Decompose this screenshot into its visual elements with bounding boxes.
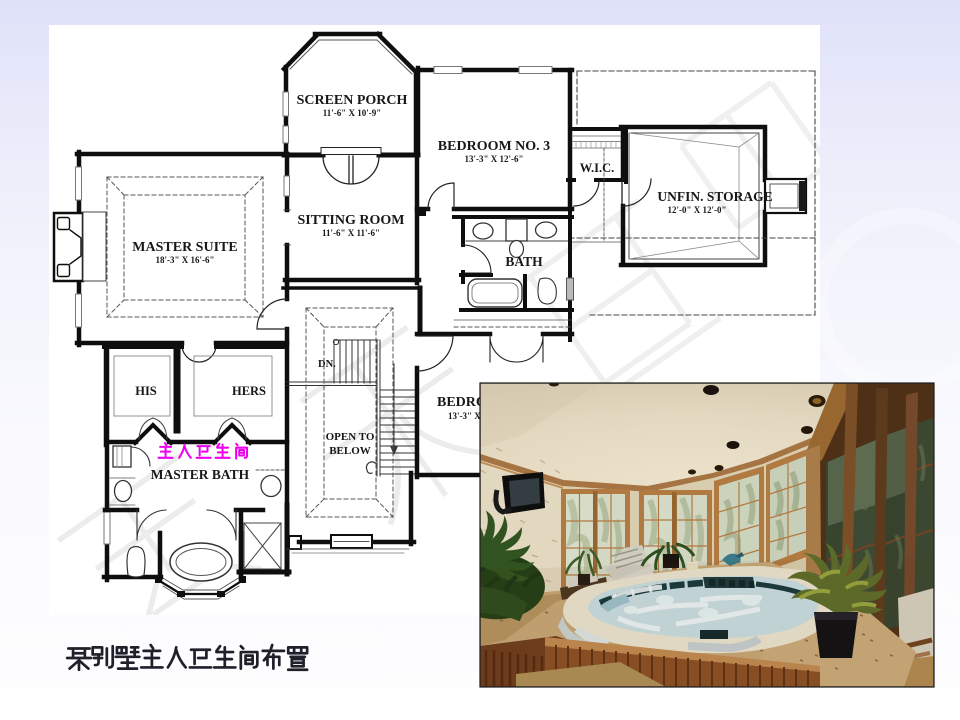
svg-text:DN.: DN.: [318, 359, 336, 370]
svg-text:18'-3" X 16'-6": 18'-3" X 16'-6": [156, 255, 215, 265]
svg-text:SITTING ROOM: SITTING ROOM: [298, 213, 405, 228]
svg-text:MASTER SUITE: MASTER SUITE: [132, 240, 237, 255]
svg-text:SCREEN PORCH: SCREEN PORCH: [297, 93, 408, 108]
svg-text:13'-3" X: 13'-3" X: [448, 411, 481, 421]
svg-text:HERS: HERS: [232, 384, 266, 398]
svg-text:HIS: HIS: [135, 384, 157, 398]
svg-text:OPEN TO: OPEN TO: [326, 431, 375, 443]
svg-text:MASTER BATH: MASTER BATH: [151, 467, 250, 482]
svg-text:13'-3" X 12'-6": 13'-3" X 12'-6": [465, 154, 524, 164]
svg-text:12'-0" X 12'-0": 12'-0" X 12'-0": [668, 205, 727, 215]
svg-text:11'-6" X 10'-9": 11'-6" X 10'-9": [323, 108, 382, 118]
svg-text:UNFIN. STORAGE: UNFIN. STORAGE: [657, 189, 772, 204]
svg-text:BEDROOM NO. 3: BEDROOM NO. 3: [438, 139, 550, 154]
svg-text:BELOW: BELOW: [329, 445, 371, 457]
svg-text:W.I.C.: W.I.C.: [580, 161, 615, 175]
svg-text:BATH: BATH: [505, 254, 543, 269]
svg-text:11'-6" X 11'-6": 11'-6" X 11'-6": [322, 228, 380, 238]
